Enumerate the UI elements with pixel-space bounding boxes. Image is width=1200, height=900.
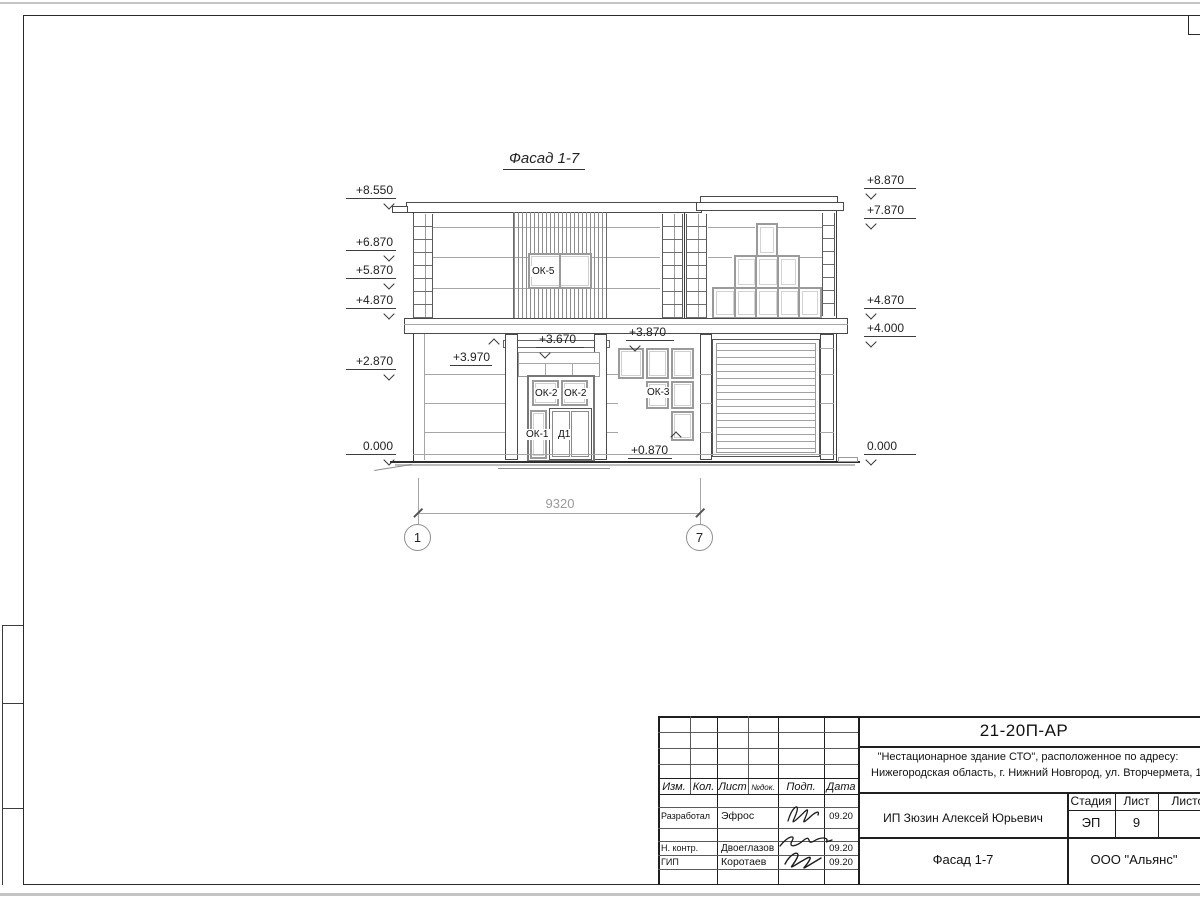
view-title: Фасад 1-7	[860, 853, 1066, 867]
elevation-mark: +4.870	[346, 294, 396, 309]
brick-quoins	[413, 214, 433, 318]
stage-label: Стадия	[1067, 795, 1115, 808]
titleblock-line	[1158, 792, 1159, 837]
porch-step	[498, 468, 610, 469]
titleblock-line	[858, 837, 1200, 839]
project-name-line2: Нижегородская область, г. Нижний Новгоро…	[860, 767, 1200, 779]
pilaster-tick	[820, 374, 834, 375]
ground-band	[395, 464, 855, 466]
client-name: ИП Зюзин Алексей Юрьевич	[860, 812, 1066, 825]
pilaster-tick	[700, 403, 712, 404]
pilaster-tick	[820, 432, 834, 433]
sheet-number: 9	[1115, 816, 1158, 830]
ground-line	[390, 461, 860, 463]
elevation-mark: +3.670	[536, 333, 584, 348]
wall-joint-vertical	[684, 212, 685, 318]
row-date: 09.20	[824, 858, 858, 868]
window-ok3-cell	[671, 348, 694, 379]
titleblock-border	[658, 884, 1200, 886]
margin-line	[2, 625, 3, 885]
col-izm: Изм.	[658, 781, 690, 793]
elevation-mark: 0.000	[864, 440, 916, 455]
elevation-mark: +5.870	[346, 264, 396, 279]
corner-stamp-box	[1188, 15, 1200, 35]
row-role: ГИП	[661, 858, 679, 868]
margin-line	[2, 625, 23, 626]
titleblock-line	[748, 716, 749, 794]
margin-line	[2, 808, 23, 809]
window-label-ok5: ОК-5	[531, 266, 556, 277]
col-ndok: №док.	[748, 784, 778, 793]
joint-line	[425, 403, 505, 404]
window-ok3-cell	[618, 348, 644, 379]
signature	[779, 848, 825, 872]
joint-line	[425, 374, 505, 375]
col-kol: Кол.	[690, 781, 717, 793]
document-number: 21-20П-АР	[858, 722, 1190, 741]
row-name: Коротаев	[721, 857, 766, 869]
floor-slab-line	[404, 324, 848, 325]
dimension-line	[418, 513, 701, 514]
sheets-label: Листов	[1160, 795, 1200, 808]
tower-window-mid	[734, 255, 800, 289]
window-label-ok1: ОК-1	[525, 429, 550, 440]
lintel-joint	[518, 363, 600, 364]
window-label-ok2b: ОК-2	[563, 388, 588, 399]
elevation-mark: +4.870	[864, 294, 916, 309]
titleblock-border	[658, 716, 660, 885]
joint-line	[425, 432, 505, 433]
axis-bubble-7: 7	[686, 524, 713, 551]
parapet-tower	[696, 202, 844, 211]
sheet-label: Лист	[1115, 795, 1158, 808]
row-name: Двоеглазов	[721, 843, 774, 854]
titleblock-line	[658, 807, 858, 808]
elevation-mark: +3.870	[626, 326, 674, 341]
titleblock-border	[658, 716, 1200, 718]
titleblock-line	[658, 794, 858, 795]
joint-line	[708, 227, 755, 228]
drawing-title: Фасад 1-7	[503, 150, 585, 170]
stage-value: ЭП	[1067, 816, 1115, 830]
titleblock-line	[658, 828, 858, 829]
joint-line	[708, 257, 732, 258]
brick-quoins	[822, 213, 835, 316]
window-label-ok3: ОК-3	[646, 387, 671, 398]
brick-quoins	[686, 214, 707, 318]
margin-line	[2, 703, 23, 704]
entrance-pilaster-left	[505, 334, 518, 460]
elevation-mark: +8.870	[864, 174, 916, 189]
joint-line	[778, 227, 822, 228]
window-mullion	[559, 255, 561, 287]
elevation-mark: +7.870	[864, 204, 916, 219]
tower-window-top	[756, 223, 778, 257]
elevation-mark: +8.550	[346, 184, 396, 199]
col-podp: Подп.	[778, 781, 824, 793]
company-name: ООО "Альянс"	[1069, 853, 1199, 867]
pilaster-tick	[700, 374, 712, 375]
axis-bubble-1: 1	[404, 524, 431, 551]
row-role: Разработал	[661, 812, 710, 822]
dimension-value: 9320	[530, 497, 590, 511]
pilaster-tick	[820, 348, 834, 349]
titleblock-line	[1067, 810, 1200, 811]
drawing-sheet: Фасад 1-7 ОК-5 ОК-2 ОК-2	[0, 0, 1200, 900]
door-label-d1: Д1	[557, 429, 571, 440]
window-ok3-cell	[671, 381, 694, 409]
titleblock-line	[858, 746, 1200, 748]
row-role: Н. контр.	[661, 844, 698, 854]
tower-window-bottom	[712, 287, 822, 319]
axis-extension-line	[700, 478, 701, 525]
row-name: Эфрос	[721, 811, 754, 823]
pilaster-tick	[820, 403, 834, 404]
garage-roller-door	[716, 343, 816, 453]
window-label-ok2a: ОК-2	[534, 388, 559, 399]
sheet-top-edge	[0, 2, 1200, 4]
titleblock-line	[658, 732, 858, 733]
titleblock-line	[717, 716, 718, 885]
elevation-mark: +0.870	[628, 444, 672, 459]
elevation-mark: +3.970	[450, 351, 492, 366]
col-data: Дата	[824, 781, 858, 793]
joint-line	[607, 403, 618, 404]
parapet-ledge	[392, 206, 408, 213]
col-list: Лист	[717, 781, 748, 793]
garage-pilaster-right	[820, 334, 834, 460]
sheet-bottom-edge	[0, 893, 1200, 896]
row-date: 09.20	[824, 812, 858, 822]
wall-right-edge	[836, 211, 837, 461]
plinth-line	[413, 454, 836, 455]
joint-line	[607, 374, 618, 375]
entrance-lintel-band	[518, 352, 600, 377]
elevation-mark: +2.870	[346, 355, 396, 370]
door-leaf	[571, 411, 589, 457]
brick-quoins	[662, 214, 683, 318]
titleblock-line	[658, 748, 858, 749]
titleblock-line	[658, 869, 858, 870]
joint-line	[607, 432, 618, 433]
project-name-line1: "Нестационарное здание СТО", расположенн…	[860, 751, 1196, 763]
titleblock-line	[658, 778, 858, 779]
garage-pilaster-left	[700, 334, 712, 460]
joint-line	[800, 257, 822, 258]
elevation-mark: +4.000	[864, 322, 916, 337]
wall-inner-line	[424, 334, 425, 460]
signature	[782, 799, 824, 829]
elevation-mark: 0.000	[346, 440, 396, 455]
axis-extension-line	[418, 478, 419, 525]
elevation-mark: +6.870	[346, 236, 396, 251]
titleblock-line	[658, 764, 858, 765]
window-ok3-cell	[646, 348, 669, 379]
curb-right	[838, 457, 858, 462]
pilaster-tick	[700, 432, 712, 433]
